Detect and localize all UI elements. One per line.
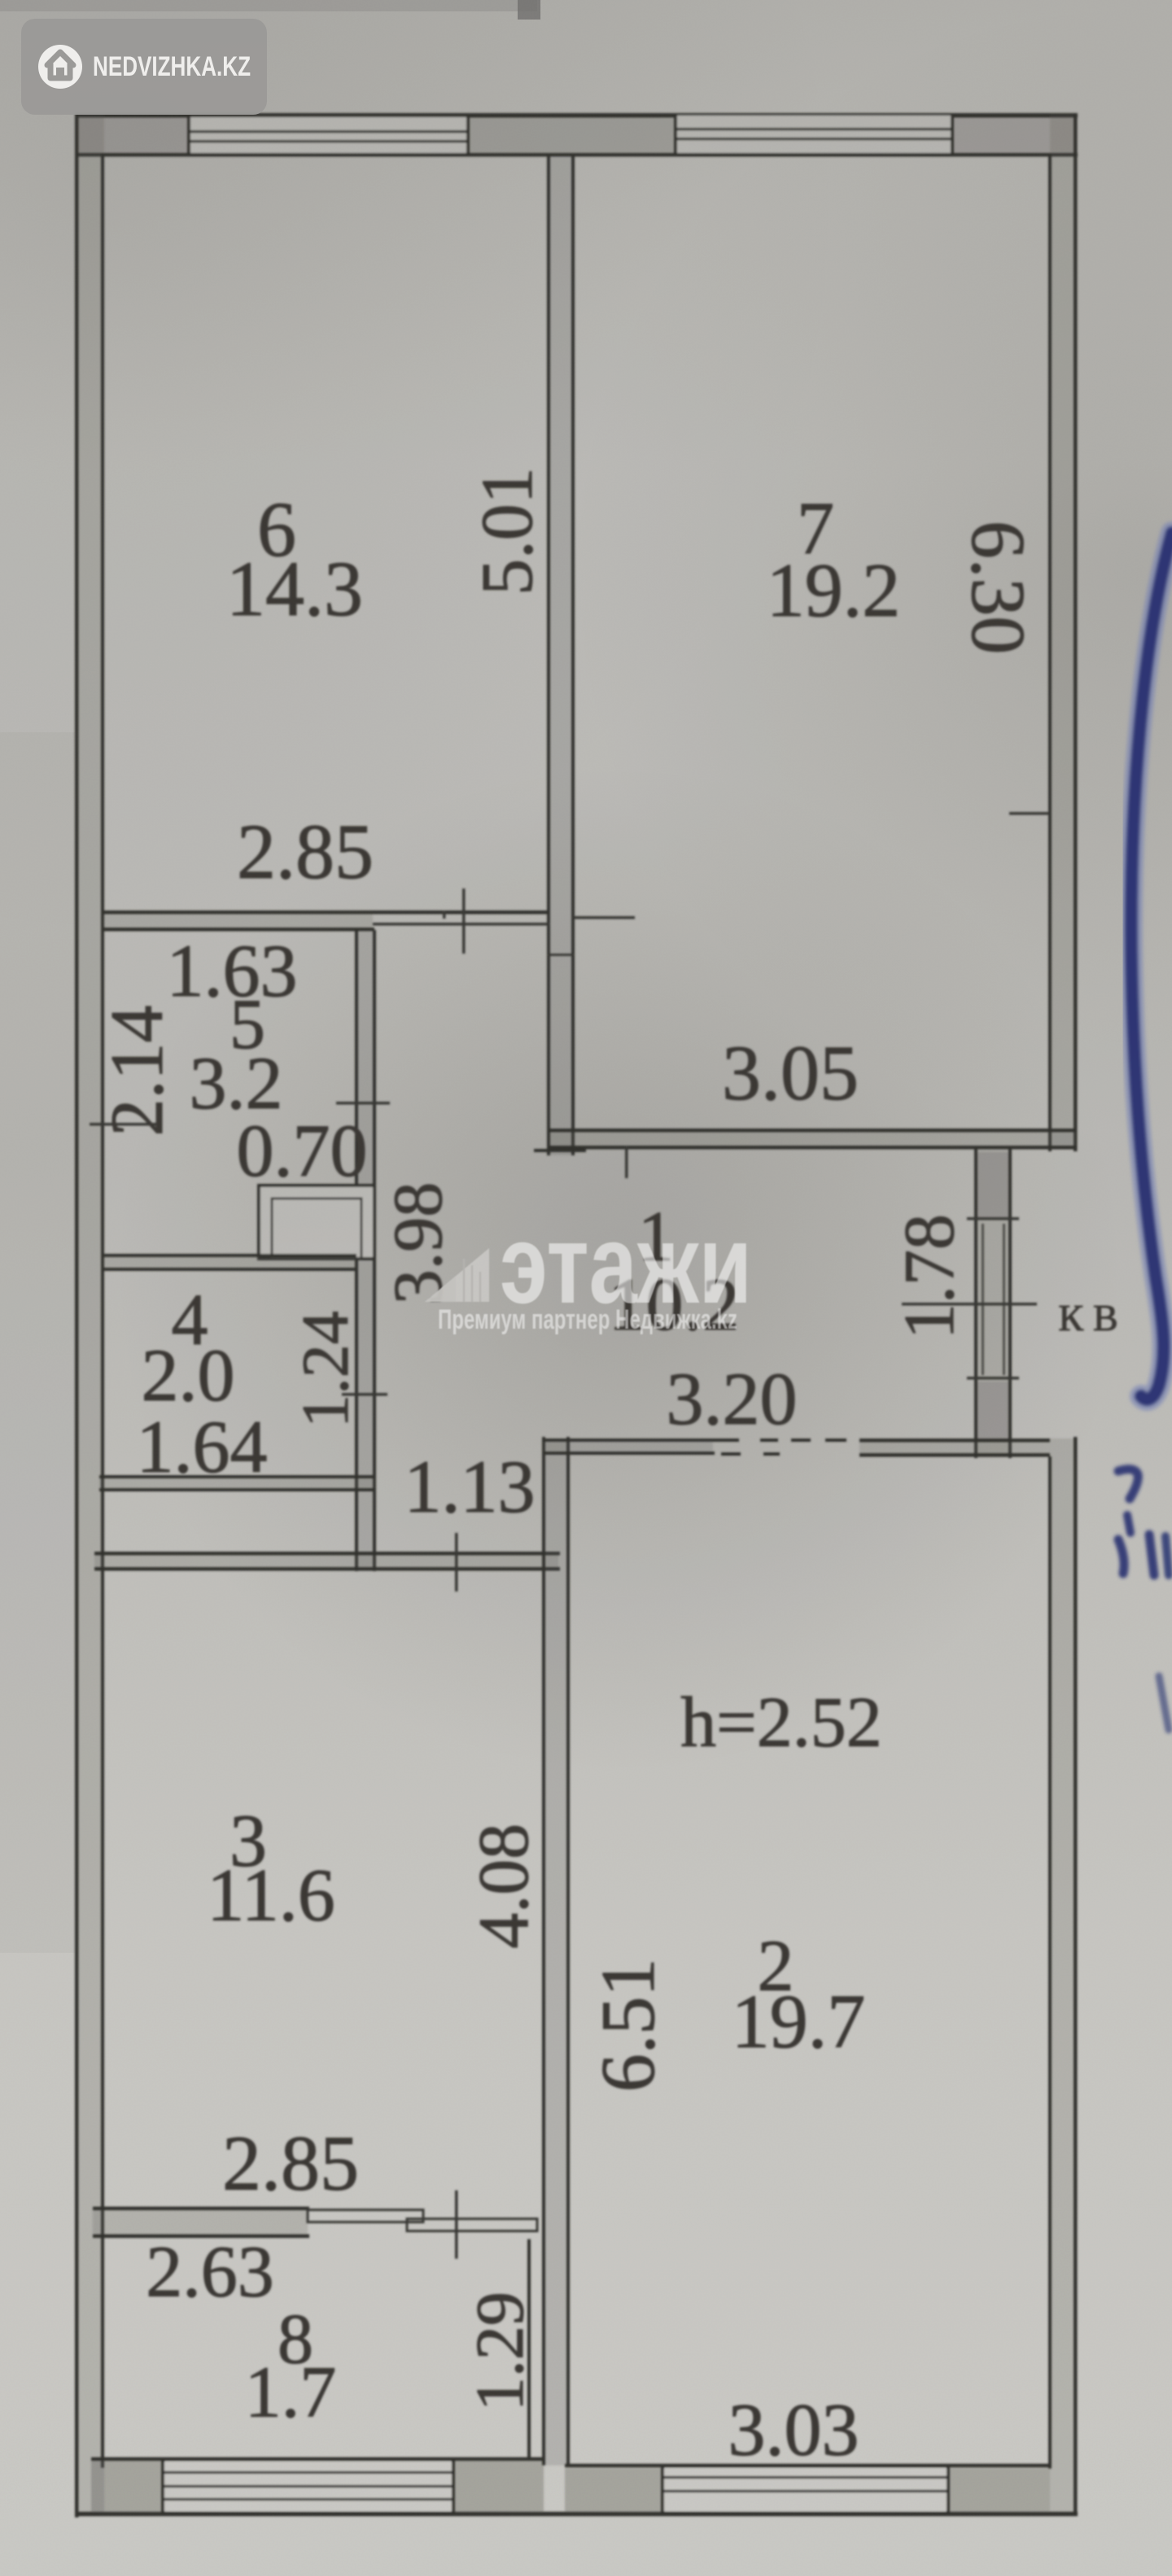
svg-text:Премиум партнер Недвижка.kz: Премиум партнер Недвижка.kz	[438, 1304, 737, 1335]
svg-text:NEDVIZHKA.KZ: NEDVIZHKA.KZ	[93, 51, 251, 82]
